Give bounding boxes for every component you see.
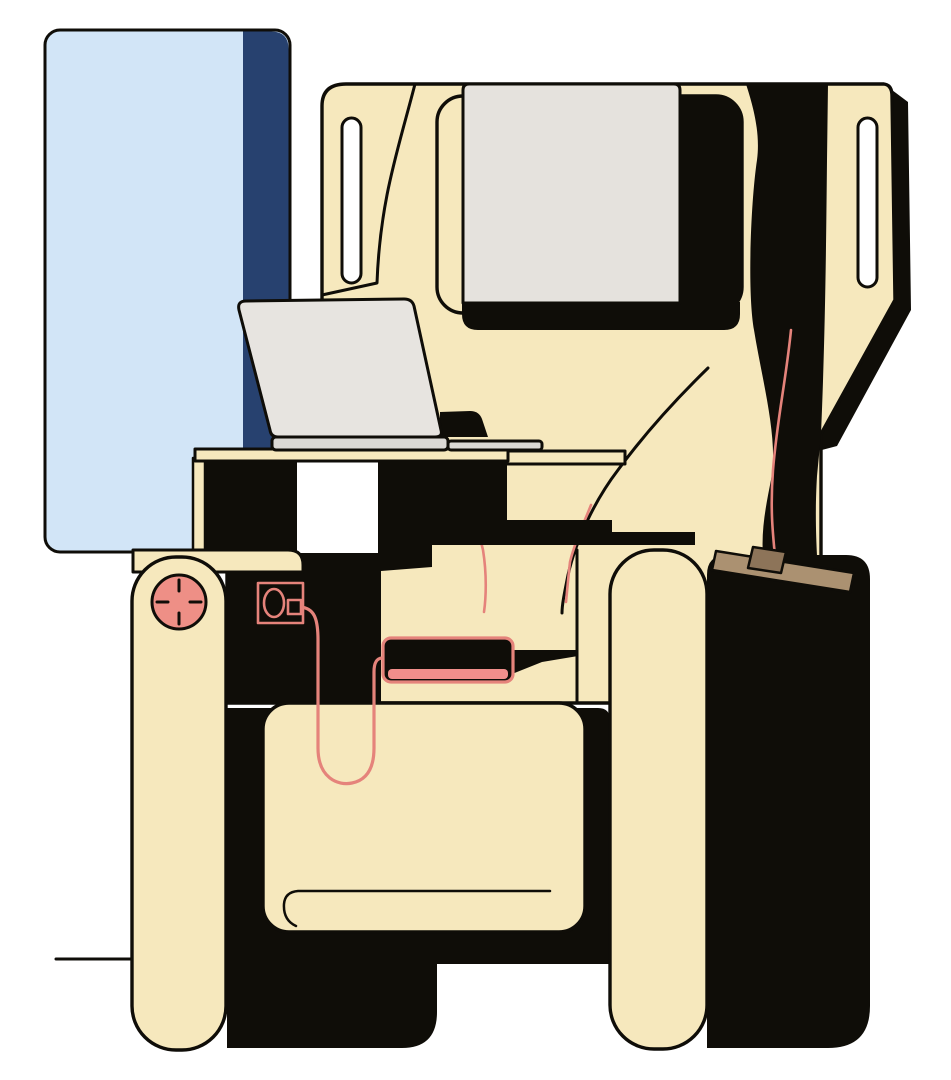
left-armrest-body xyxy=(132,557,226,1050)
side-console xyxy=(707,555,870,1048)
right-wing-slot xyxy=(858,118,877,287)
left-wing-slot xyxy=(342,118,361,283)
seatback-screen xyxy=(463,84,680,303)
under-table-gap xyxy=(297,460,378,553)
left-armrest xyxy=(132,557,226,1050)
tray-table-arm xyxy=(503,451,625,464)
outlet-plug xyxy=(288,600,301,614)
headrest-unit xyxy=(437,84,742,330)
illustration-canvas xyxy=(0,0,951,1080)
right-armrest-body xyxy=(610,550,707,1049)
table-leg xyxy=(193,458,205,557)
laptop-palm-rest xyxy=(448,441,542,450)
seat-cushion xyxy=(263,703,585,932)
laptop-screen xyxy=(239,299,442,437)
seatbelt-strap-fold xyxy=(748,547,786,573)
right-side xyxy=(610,547,870,1049)
laptop-keyboard-deck xyxy=(272,437,448,450)
smartphone-edge xyxy=(388,669,508,679)
screen-bottom-shadow xyxy=(462,302,740,330)
airplane-seat-illustration xyxy=(0,0,951,1080)
